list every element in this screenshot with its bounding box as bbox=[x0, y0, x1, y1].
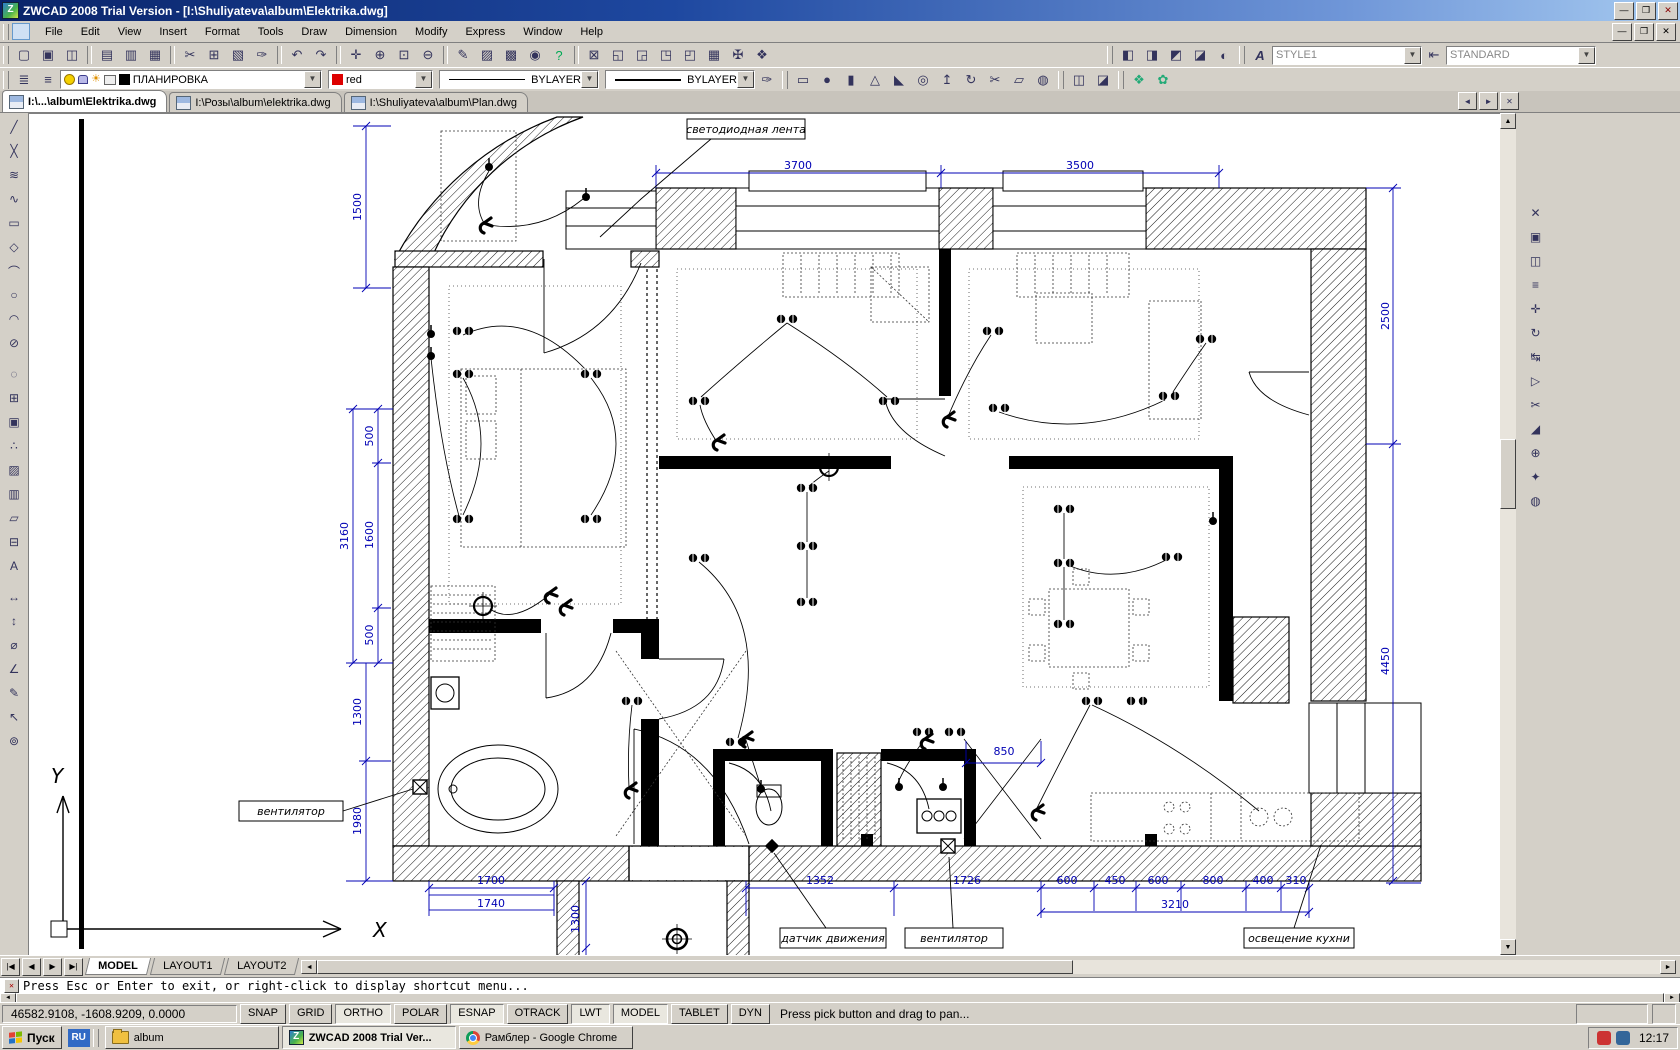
view-tool-button-6[interactable]: ▦ bbox=[703, 45, 725, 66]
help-button[interactable]: ? bbox=[548, 45, 570, 66]
copy-clip-button[interactable]: ⊞ bbox=[203, 45, 225, 66]
language-indicator[interactable]: RU bbox=[68, 1029, 90, 1047]
linetype-combo[interactable]: BYLAYER ▼ bbox=[439, 70, 599, 89]
dim-450: 450 bbox=[1105, 874, 1126, 887]
dim-3210: 3210 bbox=[1161, 898, 1189, 911]
document-icon bbox=[12, 23, 30, 40]
line-button[interactable]: ╱ bbox=[3, 116, 26, 138]
mdi-restore-button[interactable]: ❒ bbox=[1634, 23, 1654, 41]
dwg-file-icon bbox=[351, 96, 366, 110]
dim-500b: 500 bbox=[363, 625, 376, 646]
union-button[interactable]: ◫ bbox=[1068, 69, 1090, 90]
subtract-button[interactable]: ◪ bbox=[1092, 69, 1114, 90]
dim-1500: 1500 bbox=[351, 193, 364, 221]
snap-toggle[interactable]: SNAP bbox=[240, 1004, 286, 1024]
solid-torus-button[interactable]: ◎ bbox=[912, 69, 934, 90]
dim-1300: 1300 bbox=[351, 698, 364, 726]
status-bar: 46582.9108, -1608.9209, 0.0000 SNAP GRID… bbox=[0, 1002, 1680, 1024]
chrome-icon bbox=[466, 1031, 480, 1045]
ellipse-arc-button[interactable]: ◌ bbox=[3, 363, 26, 385]
tablet-toggle[interactable]: TABLET bbox=[671, 1004, 728, 1024]
view-tool-button-8[interactable]: ❖ bbox=[751, 45, 773, 66]
grid-toggle[interactable]: GRID bbox=[289, 1004, 333, 1024]
status-hint: Press pick button and drag to pan... bbox=[780, 1007, 969, 1021]
command-prompt-text[interactable]: Press Esc or Enter to exit, or right-cli… bbox=[23, 979, 529, 993]
modify-toolbar-vertical: ✕ ▣ ◫ ≡ ✛ ↻ ↹ ▷ ✂ ◢ ⊕ ✦ ◍ bbox=[1522, 113, 1549, 955]
workspace: ╱ ╳ ≋ ∿ ▭ ◇ ⌒ ○ ◠ ⊘ ◌ ⊞ ▣ ∴ ▨ ▥ ▱ ⊟ A ↔ … bbox=[0, 113, 1680, 955]
dim-310: 310 bbox=[1286, 874, 1307, 887]
doc-tab-label: I:\...\album\Elektrika.dwg bbox=[28, 96, 156, 108]
dim-3500: 3500 bbox=[1066, 159, 1094, 172]
zwcad-app-icon: Z bbox=[2, 2, 19, 19]
plot-icon[interactable] bbox=[104, 75, 116, 85]
explode-button[interactable]: ◍ bbox=[1524, 490, 1547, 512]
hatch-button[interactable]: ▨ bbox=[3, 459, 26, 481]
dim-1740: 1740 bbox=[477, 897, 505, 910]
dim-diameter-button[interactable]: ⌀ bbox=[3, 634, 26, 656]
table-button[interactable]: ⊟ bbox=[3, 531, 26, 553]
tab-model[interactable]: MODEL bbox=[85, 958, 151, 975]
color-combo[interactable]: red ▼ bbox=[328, 70, 433, 89]
text-style-icon: A bbox=[1249, 45, 1271, 66]
dim-850: 850 bbox=[994, 745, 1015, 758]
layers-toolbar: ≣ ≡ ☀ ПЛАНИРОВКА ▼ red ▼ BYLAYER ▼ BYLAY… bbox=[0, 67, 1680, 91]
layer-name-value: ПЛАНИРОВКА bbox=[133, 74, 208, 86]
dim-style-icon: ⇤ bbox=[1423, 45, 1445, 66]
erase-button[interactable]: ✕ bbox=[1524, 202, 1547, 224]
menu-tools[interactable]: Tools bbox=[249, 23, 293, 41]
lineweight-value: BYLAYER bbox=[687, 74, 737, 86]
toolbar-separator bbox=[336, 46, 341, 64]
zoom-window-button[interactable]: ⊡ bbox=[393, 45, 415, 66]
solid-sphere-button[interactable]: ● bbox=[816, 69, 838, 90]
resize-grip[interactable] bbox=[1652, 1004, 1676, 1024]
shade-tool-button-1[interactable]: ◧ bbox=[1117, 45, 1139, 66]
esnap-toggle[interactable]: ESNAP bbox=[450, 1004, 503, 1024]
polygon-button[interactable]: ◇ bbox=[3, 236, 26, 258]
menu-window[interactable]: Window bbox=[514, 23, 571, 41]
lineweight-combo[interactable]: BYLAYER ▼ bbox=[605, 70, 755, 89]
ucs-y-label: Y bbox=[51, 764, 65, 788]
solid-cone-button[interactable]: △ bbox=[864, 69, 886, 90]
view-tool-button-3[interactable]: ◲ bbox=[631, 45, 653, 66]
interfere-button[interactable]: ◍ bbox=[1032, 69, 1054, 90]
zoom-previous-button[interactable]: ⊖ bbox=[417, 45, 439, 66]
dim-linear-button[interactable]: ↔ bbox=[3, 586, 26, 608]
text-style-value: STYLE1 bbox=[1276, 49, 1317, 61]
chevron-down-icon[interactable]: ▼ bbox=[581, 71, 598, 88]
make-block-button[interactable]: ▣ bbox=[3, 411, 26, 433]
spline-button[interactable]: ∿ bbox=[3, 188, 26, 210]
callout-led-strip: светодиодная лента bbox=[686, 123, 806, 136]
tab-scroll-left-icon[interactable]: ◄ bbox=[1458, 92, 1477, 110]
plot-button[interactable]: ▤ bbox=[96, 45, 118, 66]
chevron-down-icon[interactable]: ▼ bbox=[1404, 47, 1421, 64]
layer-combo[interactable]: ☀ ПЛАНИРОВКА ▼ bbox=[60, 70, 322, 89]
mirror-button[interactable]: ◫ bbox=[1524, 250, 1547, 272]
horizontal-scrollbar[interactable]: ◄ ► bbox=[301, 960, 1676, 974]
find-button[interactable]: ◉ bbox=[524, 45, 546, 66]
arc-button[interactable]: ⌒ bbox=[3, 260, 26, 282]
menu-edit[interactable]: Edit bbox=[72, 23, 109, 41]
scroll-up-icon[interactable]: ▲ bbox=[1500, 113, 1516, 129]
doc-tab-elektrika-rozy[interactable]: I:\Розы\album\elektrika.dwg bbox=[169, 92, 341, 112]
maximize-button[interactable]: ❒ bbox=[1636, 2, 1656, 20]
linetype-sample bbox=[449, 79, 525, 80]
system-tray: 12:17 bbox=[1588, 1027, 1678, 1049]
menu-view[interactable]: View bbox=[109, 23, 151, 41]
toolbar-separator bbox=[443, 46, 448, 64]
menu-modify[interactable]: Modify bbox=[406, 23, 456, 41]
layer-color-swatch bbox=[119, 74, 130, 85]
color-value: red bbox=[346, 74, 362, 86]
lock-icon[interactable] bbox=[78, 75, 88, 84]
scrollbar-thumb[interactable] bbox=[1500, 439, 1516, 509]
materials-button[interactable]: ✿ bbox=[1152, 69, 1174, 90]
dim-3160: 3160 bbox=[338, 522, 351, 550]
dim-v1300: 1300 bbox=[569, 905, 582, 933]
menu-bar: File Edit View Insert Format Tools Draw … bbox=[0, 21, 1680, 43]
drawing-canvas[interactable]: 3700 3500 2500 4450 1500 500 3160 1600 5… bbox=[28, 113, 1500, 955]
windows-flag-icon bbox=[9, 1031, 23, 1044]
tab-layout1[interactable]: LAYOUT1 bbox=[150, 958, 226, 975]
scroll-right-icon[interactable]: ► bbox=[1660, 960, 1676, 974]
view-tool-button-2[interactable]: ◱ bbox=[607, 45, 629, 66]
dim-4450: 4450 bbox=[1379, 647, 1392, 675]
dim-400: 400 bbox=[1253, 874, 1274, 887]
doc-tab-label: I:\Розы\album\elektrika.dwg bbox=[195, 97, 330, 109]
coordinate-readout: 46582.9108, -1608.9209, 0.0000 bbox=[2, 1005, 237, 1023]
revolve-button[interactable]: ↻ bbox=[960, 69, 982, 90]
next-tab-icon[interactable]: ▶ bbox=[43, 958, 62, 976]
new-button[interactable]: ▢ bbox=[13, 45, 35, 66]
toolbar-grip[interactable] bbox=[782, 71, 788, 89]
toolbar-separator bbox=[574, 46, 579, 64]
model-toggle[interactable]: MODEL bbox=[613, 1004, 668, 1024]
construction-line-button[interactable]: ╳ bbox=[3, 140, 26, 162]
shade-tool-button-3[interactable]: ◩ bbox=[1165, 45, 1187, 66]
array-button[interactable]: ✛ bbox=[1524, 298, 1547, 320]
task-chrome[interactable]: Рамблер - Google Chrome bbox=[459, 1026, 633, 1049]
menu-dimension[interactable]: Dimension bbox=[336, 23, 406, 41]
tab-close-icon[interactable]: ✕ bbox=[1500, 92, 1519, 110]
dim-3700: 3700 bbox=[784, 159, 812, 172]
dim-style-combo[interactable]: STANDARD ▼ bbox=[1446, 46, 1596, 65]
task-zwcad[interactable]: Z ZWCAD 2008 Trial Ver... bbox=[282, 1026, 456, 1049]
insert-block-button[interactable]: ⊞ bbox=[3, 387, 26, 409]
tab-scroll-right-icon[interactable]: ► bbox=[1479, 92, 1498, 110]
sun-icon[interactable]: ☀ bbox=[91, 74, 101, 85]
layer-previous-button[interactable]: ≡ bbox=[37, 69, 59, 90]
doc-tab-label: I:\Shuliyateva\album\Plan.dwg bbox=[370, 97, 517, 109]
folder-icon bbox=[112, 1031, 129, 1044]
chevron-down-icon[interactable]: ▼ bbox=[737, 71, 754, 88]
ellipse-button[interactable]: ⊘ bbox=[3, 332, 26, 354]
toolbar-grip[interactable] bbox=[3, 46, 9, 64]
region-button[interactable]: ▱ bbox=[3, 507, 26, 529]
callout-motion-sensor: датчик движения bbox=[780, 932, 885, 945]
extend-button[interactable]: ◢ bbox=[1524, 418, 1547, 440]
mdi-minimize-button[interactable]: — bbox=[1612, 23, 1632, 41]
calculator-button[interactable]: ▩ bbox=[500, 45, 522, 66]
window-title: ZWCAD 2008 Trial Version - [I:\Shuliyate… bbox=[23, 4, 1612, 18]
menu-help[interactable]: Help bbox=[571, 23, 612, 41]
tab-layout2[interactable]: LAYOUT2 bbox=[224, 958, 300, 975]
layout-tab-bar: |◀ ◀ ▶ ▶| MODEL LAYOUT1 LAYOUT2 ◄ ► bbox=[0, 955, 1680, 977]
open-button[interactable]: ▣ bbox=[37, 45, 59, 66]
menu-draw[interactable]: Draw bbox=[292, 23, 336, 41]
taskbar: Пуск RU album Z ZWCAD 2008 Trial Ver... … bbox=[0, 1024, 1680, 1050]
view-tool-button-7[interactable]: ✠ bbox=[727, 45, 749, 66]
doc-tab-elektrika[interactable]: I:\...\album\Elektrika.dwg bbox=[2, 90, 167, 112]
dim-1700: 1700 bbox=[477, 874, 505, 887]
match-properties-button[interactable]: ✑ bbox=[251, 45, 273, 66]
mtext-button[interactable]: A bbox=[3, 555, 26, 577]
standard-toolbar: ▢ ▣ ◫ ▤ ▥ ▦ ✂ ⊞ ▧ ✑ ↶ ↷ ✛ ⊕ ⊡ ⊖ ✎ ▨ ▩ ◉ … bbox=[0, 43, 1680, 67]
chevron-down-icon[interactable]: ▼ bbox=[415, 71, 432, 88]
toolbar-separator bbox=[87, 46, 92, 64]
callout-fan-bottom: вентилятор bbox=[920, 932, 988, 945]
shade-tool-button-2[interactable]: ◨ bbox=[1141, 45, 1163, 66]
menu-format[interactable]: Format bbox=[196, 23, 249, 41]
rectangle-button[interactable]: ▭ bbox=[3, 212, 26, 234]
last-tab-icon[interactable]: ▶| bbox=[64, 958, 83, 976]
scroll-down-icon[interactable]: ▼ bbox=[1500, 939, 1516, 955]
taskbar-divider bbox=[93, 1029, 99, 1047]
dwg-file-icon bbox=[176, 96, 191, 110]
shade-tool-button-5[interactable]: ◐ bbox=[1213, 45, 1235, 66]
close-button[interactable]: ✕ bbox=[1658, 2, 1678, 20]
command-close-icon[interactable]: ✕ bbox=[4, 979, 19, 993]
properties-paint-button[interactable]: ✑ bbox=[756, 69, 778, 90]
tray-icon-antivirus[interactable] bbox=[1597, 1031, 1611, 1045]
command-line-window[interactable]: ✕ Press Esc or Enter to exit, or right-c… bbox=[0, 977, 1680, 1002]
floor-plan-drawing: 3700 3500 2500 4450 1500 500 3160 1600 5… bbox=[29, 114, 1501, 956]
ucs-x-label: X bbox=[372, 918, 388, 942]
gradient-button[interactable]: ▥ bbox=[3, 483, 26, 505]
toolbar-grip[interactable] bbox=[1118, 71, 1124, 89]
trim-button[interactable]: ✂ bbox=[1524, 394, 1547, 416]
zwcad-task-icon: Z bbox=[289, 1030, 304, 1045]
menu-grip bbox=[3, 24, 9, 40]
layer-properties-button[interactable]: ≣ bbox=[13, 69, 35, 90]
redo-button[interactable]: ↷ bbox=[310, 45, 332, 66]
chamfer-button[interactable]: ⊕ bbox=[1524, 442, 1547, 464]
doc-tab-plan[interactable]: I:\Shuliyateva\album\Plan.dwg bbox=[344, 92, 528, 112]
offset-button[interactable]: ≡ bbox=[1524, 274, 1547, 296]
toolbar-grip[interactable] bbox=[1239, 46, 1245, 64]
dim-1980: 1980 bbox=[351, 807, 364, 835]
view-tool-button-5[interactable]: ◰ bbox=[679, 45, 701, 66]
toolbar-grip[interactable] bbox=[1058, 71, 1064, 89]
chevron-down-icon[interactable]: ▼ bbox=[1578, 47, 1595, 64]
dim-2500: 2500 bbox=[1379, 302, 1392, 330]
ortho-toggle[interactable]: ORTHO bbox=[335, 1004, 391, 1024]
status-pane bbox=[1576, 1004, 1648, 1024]
circle-button[interactable]: ○ bbox=[3, 284, 26, 306]
section-button[interactable]: ▱ bbox=[1008, 69, 1030, 90]
mdi-close-button[interactable]: ✕ bbox=[1656, 23, 1676, 41]
dwg-file-icon bbox=[9, 95, 24, 109]
scrollbar-thumb[interactable] bbox=[317, 960, 1073, 974]
save-button[interactable]: ◫ bbox=[61, 45, 83, 66]
render-button[interactable]: ❖ bbox=[1128, 69, 1150, 90]
menu-insert[interactable]: Insert bbox=[150, 23, 196, 41]
dyn-toggle[interactable]: DYN bbox=[731, 1004, 770, 1024]
taskbar-clock: 12:17 bbox=[1639, 1031, 1669, 1045]
lineweight-sample bbox=[615, 79, 681, 81]
undo-button[interactable]: ↶ bbox=[286, 45, 308, 66]
dim-angular-button[interactable]: ∠ bbox=[3, 658, 26, 680]
callout-kitchen-light: освещение кухни bbox=[1248, 932, 1350, 945]
dim-1726: 1726 bbox=[953, 874, 981, 887]
otrack-toggle[interactable]: OTRACK bbox=[507, 1004, 569, 1024]
first-tab-icon[interactable]: |◀ bbox=[1, 958, 20, 976]
dim-600b: 600 bbox=[1148, 874, 1169, 887]
center-mark-button[interactable]: ⊚ bbox=[3, 730, 26, 752]
linetype-value: BYLAYER bbox=[531, 74, 581, 86]
solid-cylinder-button[interactable]: ▮ bbox=[840, 69, 862, 90]
plot-preview-button[interactable]: ▥ bbox=[120, 45, 142, 66]
prev-tab-icon[interactable]: ◀ bbox=[22, 958, 41, 976]
zwcad-application-window: Z ZWCAD 2008 Trial Version - [I:\Shuliya… bbox=[0, 0, 1680, 1050]
document-tab-bar: I:\...\album\Elektrika.dwg I:\Розы\album… bbox=[0, 91, 1680, 113]
fillet-button[interactable]: ✦ bbox=[1524, 466, 1547, 488]
lwt-toggle[interactable]: LWT bbox=[571, 1004, 609, 1024]
rotate-button[interactable]: ↹ bbox=[1524, 346, 1547, 368]
toolbar-grip[interactable] bbox=[1107, 46, 1113, 64]
sketch-button[interactable]: ✎ bbox=[452, 45, 474, 66]
view-tool-button-1[interactable]: ⊠ bbox=[583, 45, 605, 66]
cut-button[interactable]: ✂ bbox=[179, 45, 201, 66]
vertical-scrollbar[interactable]: ▲ ▼ bbox=[1500, 113, 1516, 955]
dim-1352: 1352 bbox=[806, 874, 834, 887]
callout-fan-left: вентилятор bbox=[257, 805, 325, 818]
tray-icon-volume[interactable] bbox=[1616, 1031, 1630, 1045]
toolbar-separator bbox=[170, 46, 175, 64]
menu-file[interactable]: File bbox=[36, 23, 72, 41]
publish-button[interactable]: ▦ bbox=[144, 45, 166, 66]
polyline-button[interactable]: ≋ bbox=[3, 164, 26, 186]
dim-aligned-button[interactable]: ↕ bbox=[3, 610, 26, 632]
color-swatch-red bbox=[332, 74, 343, 85]
extrude-button[interactable]: ↥ bbox=[936, 69, 958, 90]
view-tool-button-4[interactable]: ◳ bbox=[655, 45, 677, 66]
minimize-button[interactable]: — bbox=[1614, 2, 1634, 20]
start-button[interactable]: Пуск bbox=[2, 1026, 62, 1049]
pan-button[interactable]: ✛ bbox=[345, 45, 367, 66]
copy-button[interactable]: ▣ bbox=[1524, 226, 1547, 248]
polar-toggle[interactable]: POLAR bbox=[394, 1004, 447, 1024]
move-button[interactable]: ↻ bbox=[1524, 322, 1547, 344]
text-style-combo[interactable]: STYLE1 ▼ bbox=[1272, 46, 1422, 65]
solid-wedge-button[interactable]: ◣ bbox=[888, 69, 910, 90]
task-album[interactable]: album bbox=[105, 1026, 279, 1049]
point-button[interactable]: ∴ bbox=[3, 435, 26, 457]
dim-800: 800 bbox=[1203, 874, 1224, 887]
layer-on-icon[interactable] bbox=[64, 74, 75, 85]
scroll-left-icon[interactable]: ◄ bbox=[301, 960, 317, 974]
properties-button[interactable]: ▨ bbox=[476, 45, 498, 66]
title-bar[interactable]: Z ZWCAD 2008 Trial Version - [I:\Shuliya… bbox=[0, 0, 1680, 21]
slice-button[interactable]: ✂ bbox=[984, 69, 1006, 90]
shade-tool-button-4[interactable]: ◪ bbox=[1189, 45, 1211, 66]
dim-1600: 1600 bbox=[363, 521, 376, 549]
leader-button[interactable]: ↖ bbox=[3, 706, 26, 728]
section-line bbox=[79, 119, 84, 949]
draw-toolbar-vertical: ╱ ╳ ≋ ∿ ▭ ◇ ⌒ ○ ◠ ⊘ ◌ ⊞ ▣ ∴ ▨ ▥ ▱ ⊟ A ↔ … bbox=[0, 113, 28, 955]
toolbar-grip[interactable] bbox=[3, 71, 9, 89]
edit-text-button[interactable]: ✎ bbox=[3, 682, 26, 704]
dim-500a: 500 bbox=[363, 426, 376, 447]
scale-button[interactable]: ▷ bbox=[1524, 370, 1547, 392]
zoom-realtime-button[interactable]: ⊕ bbox=[369, 45, 391, 66]
toolbar-separator bbox=[277, 46, 282, 64]
chevron-down-icon[interactable]: ▼ bbox=[304, 71, 321, 88]
paste-button[interactable]: ▧ bbox=[227, 45, 249, 66]
solid-box-button[interactable]: ▭ bbox=[792, 69, 814, 90]
menu-express[interactable]: Express bbox=[456, 23, 514, 41]
revision-cloud-button[interactable]: ◠ bbox=[3, 308, 26, 330]
dim-600a: 600 bbox=[1057, 874, 1078, 887]
dim-style-value: STANDARD bbox=[1450, 49, 1510, 61]
